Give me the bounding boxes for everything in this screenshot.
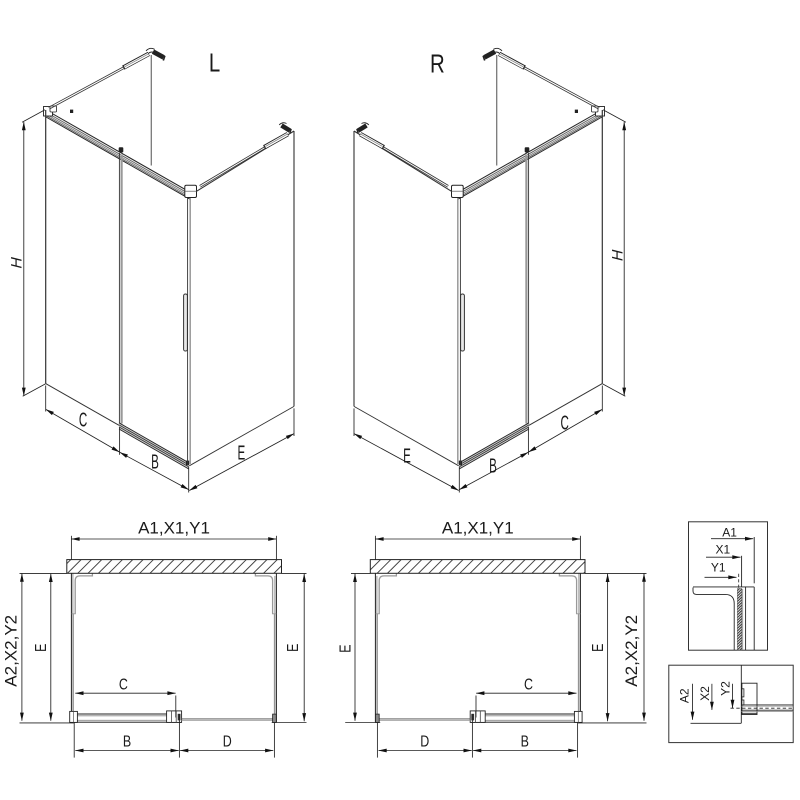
svg-text:A1,X1,Y1: A1,X1,Y1 (442, 519, 514, 538)
svg-text:Y2: Y2 (719, 681, 733, 696)
svg-text:X2: X2 (698, 686, 712, 701)
svg-text:C: C (561, 412, 570, 434)
svg-text:E: E (285, 644, 303, 652)
svg-text:E: E (238, 442, 246, 464)
svg-text:E: E (590, 644, 608, 652)
svg-text:A1,X1,Y1: A1,X1,Y1 (138, 519, 210, 538)
svg-text:B: B (489, 455, 497, 477)
svg-text:C: C (119, 676, 128, 694)
svg-text:E: E (33, 644, 51, 652)
svg-text:E: E (403, 446, 411, 468)
svg-text:E: E (337, 644, 355, 652)
svg-text:A2: A2 (677, 688, 691, 703)
svg-text:L: L (209, 48, 220, 77)
svg-text:D: D (420, 733, 429, 751)
svg-text:A1: A1 (722, 525, 737, 539)
svg-text:R: R (430, 49, 445, 78)
svg-text:C: C (79, 409, 88, 431)
svg-text:C: C (524, 676, 533, 694)
svg-text:B: B (123, 733, 131, 751)
svg-text:B: B (151, 451, 159, 473)
svg-text:A2,X2,Y2: A2,X2,Y2 (1, 615, 20, 687)
svg-text:X1: X1 (716, 543, 731, 557)
svg-text:D: D (223, 733, 232, 751)
svg-text:Y1: Y1 (711, 561, 726, 575)
svg-text:B: B (521, 733, 529, 751)
svg-text:A2,X2,Y2: A2,X2,Y2 (622, 615, 641, 687)
